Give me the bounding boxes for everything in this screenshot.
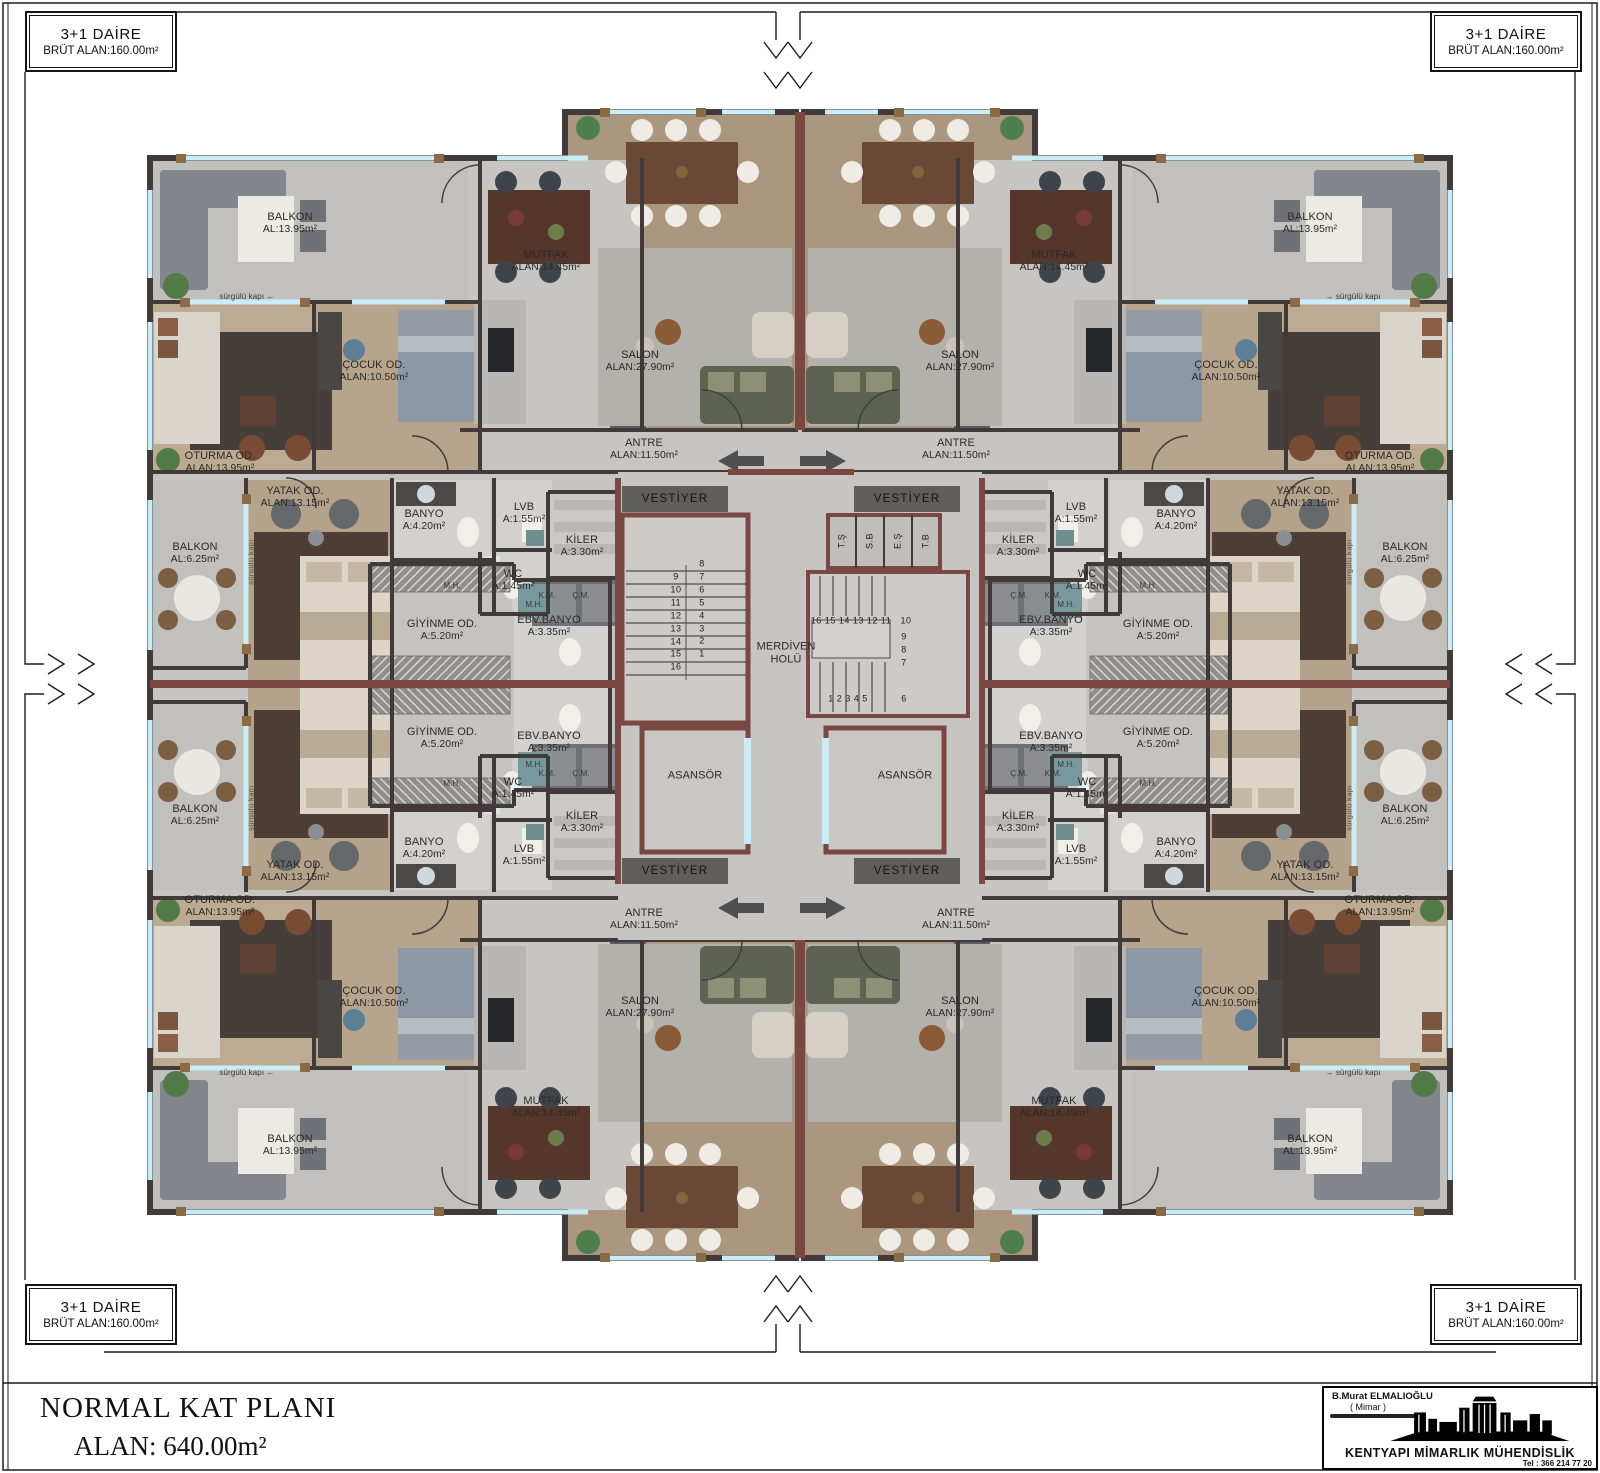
apartment-area: BRÜT ALAN:160.00m² bbox=[43, 1318, 158, 1330]
floor-plan-drawing bbox=[0, 0, 1600, 1473]
company-phone: Tel : 366 214 77 20 bbox=[1523, 1459, 1592, 1468]
logo-block: B.Murat ELMALIOĞLU ( Mimar ) KENTYAPI Mİ… bbox=[1322, 1386, 1598, 1470]
core-stair-hall bbox=[618, 450, 982, 940]
apartment-area: BRÜT ALAN:160.00m² bbox=[1448, 1318, 1563, 1330]
plan-area: ALAN: 640.00m² bbox=[74, 1431, 336, 1462]
corner-tag-top-left: 3+1 DAİRE BRÜT ALAN:160.00m² bbox=[25, 11, 177, 72]
corner-tag-bottom-left: 3+1 DAİRE BRÜT ALAN:160.00m² bbox=[25, 1284, 177, 1345]
apartment-type: 3+1 DAİRE bbox=[61, 1299, 142, 1316]
corner-tag-bottom-right: 3+1 DAİRE BRÜT ALAN:160.00m² bbox=[1430, 1284, 1582, 1345]
plan-title: NORMAL KAT PLANI bbox=[40, 1392, 336, 1425]
apartment-type: 3+1 DAİRE bbox=[1466, 26, 1547, 43]
apartment-type: 3+1 DAİRE bbox=[61, 26, 142, 43]
floor-plan-sheet: BALKONAL:13.95m²BALKONAL:13.95m²BALKONAL… bbox=[0, 0, 1600, 1473]
company-name: KENTYAPI MİMARLIK MÜHENDİSLİK bbox=[1324, 1446, 1596, 1460]
corner-tag-top-right: 3+1 DAİRE BRÜT ALAN:160.00m² bbox=[1430, 11, 1582, 72]
title-block: NORMAL KAT PLANI ALAN: 640.00m² bbox=[40, 1392, 336, 1462]
apartment-area: BRÜT ALAN:160.00m² bbox=[1448, 45, 1563, 57]
apartment-area: BRÜT ALAN:160.00m² bbox=[43, 45, 158, 57]
architect-role: ( Mimar ) bbox=[1350, 1402, 1386, 1412]
apartment-type: 3+1 DAİRE bbox=[1466, 1299, 1547, 1316]
skyline-logo-icon bbox=[1384, 1390, 1574, 1446]
